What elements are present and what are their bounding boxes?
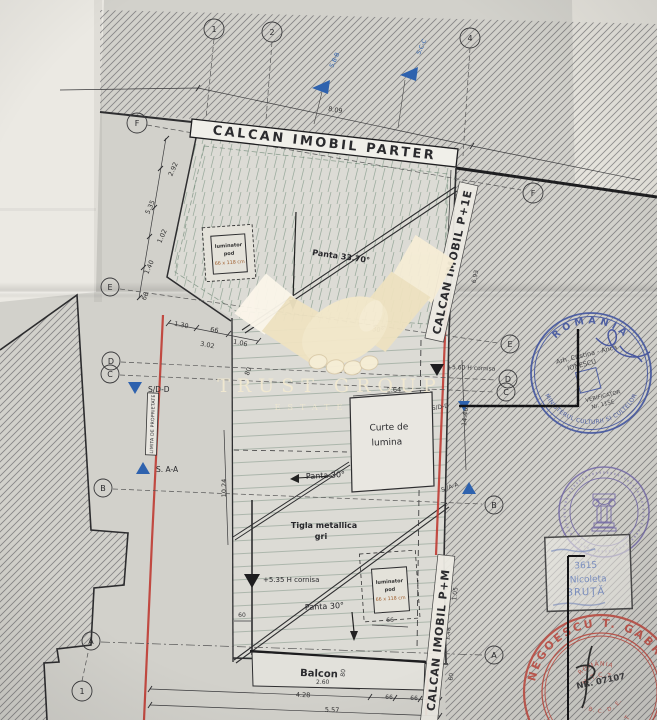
photo-vignette [0, 0, 657, 720]
architectural-plan-photo: LIMITA DE PROPRIETATE 1 2 4 F E D [0, 0, 657, 720]
